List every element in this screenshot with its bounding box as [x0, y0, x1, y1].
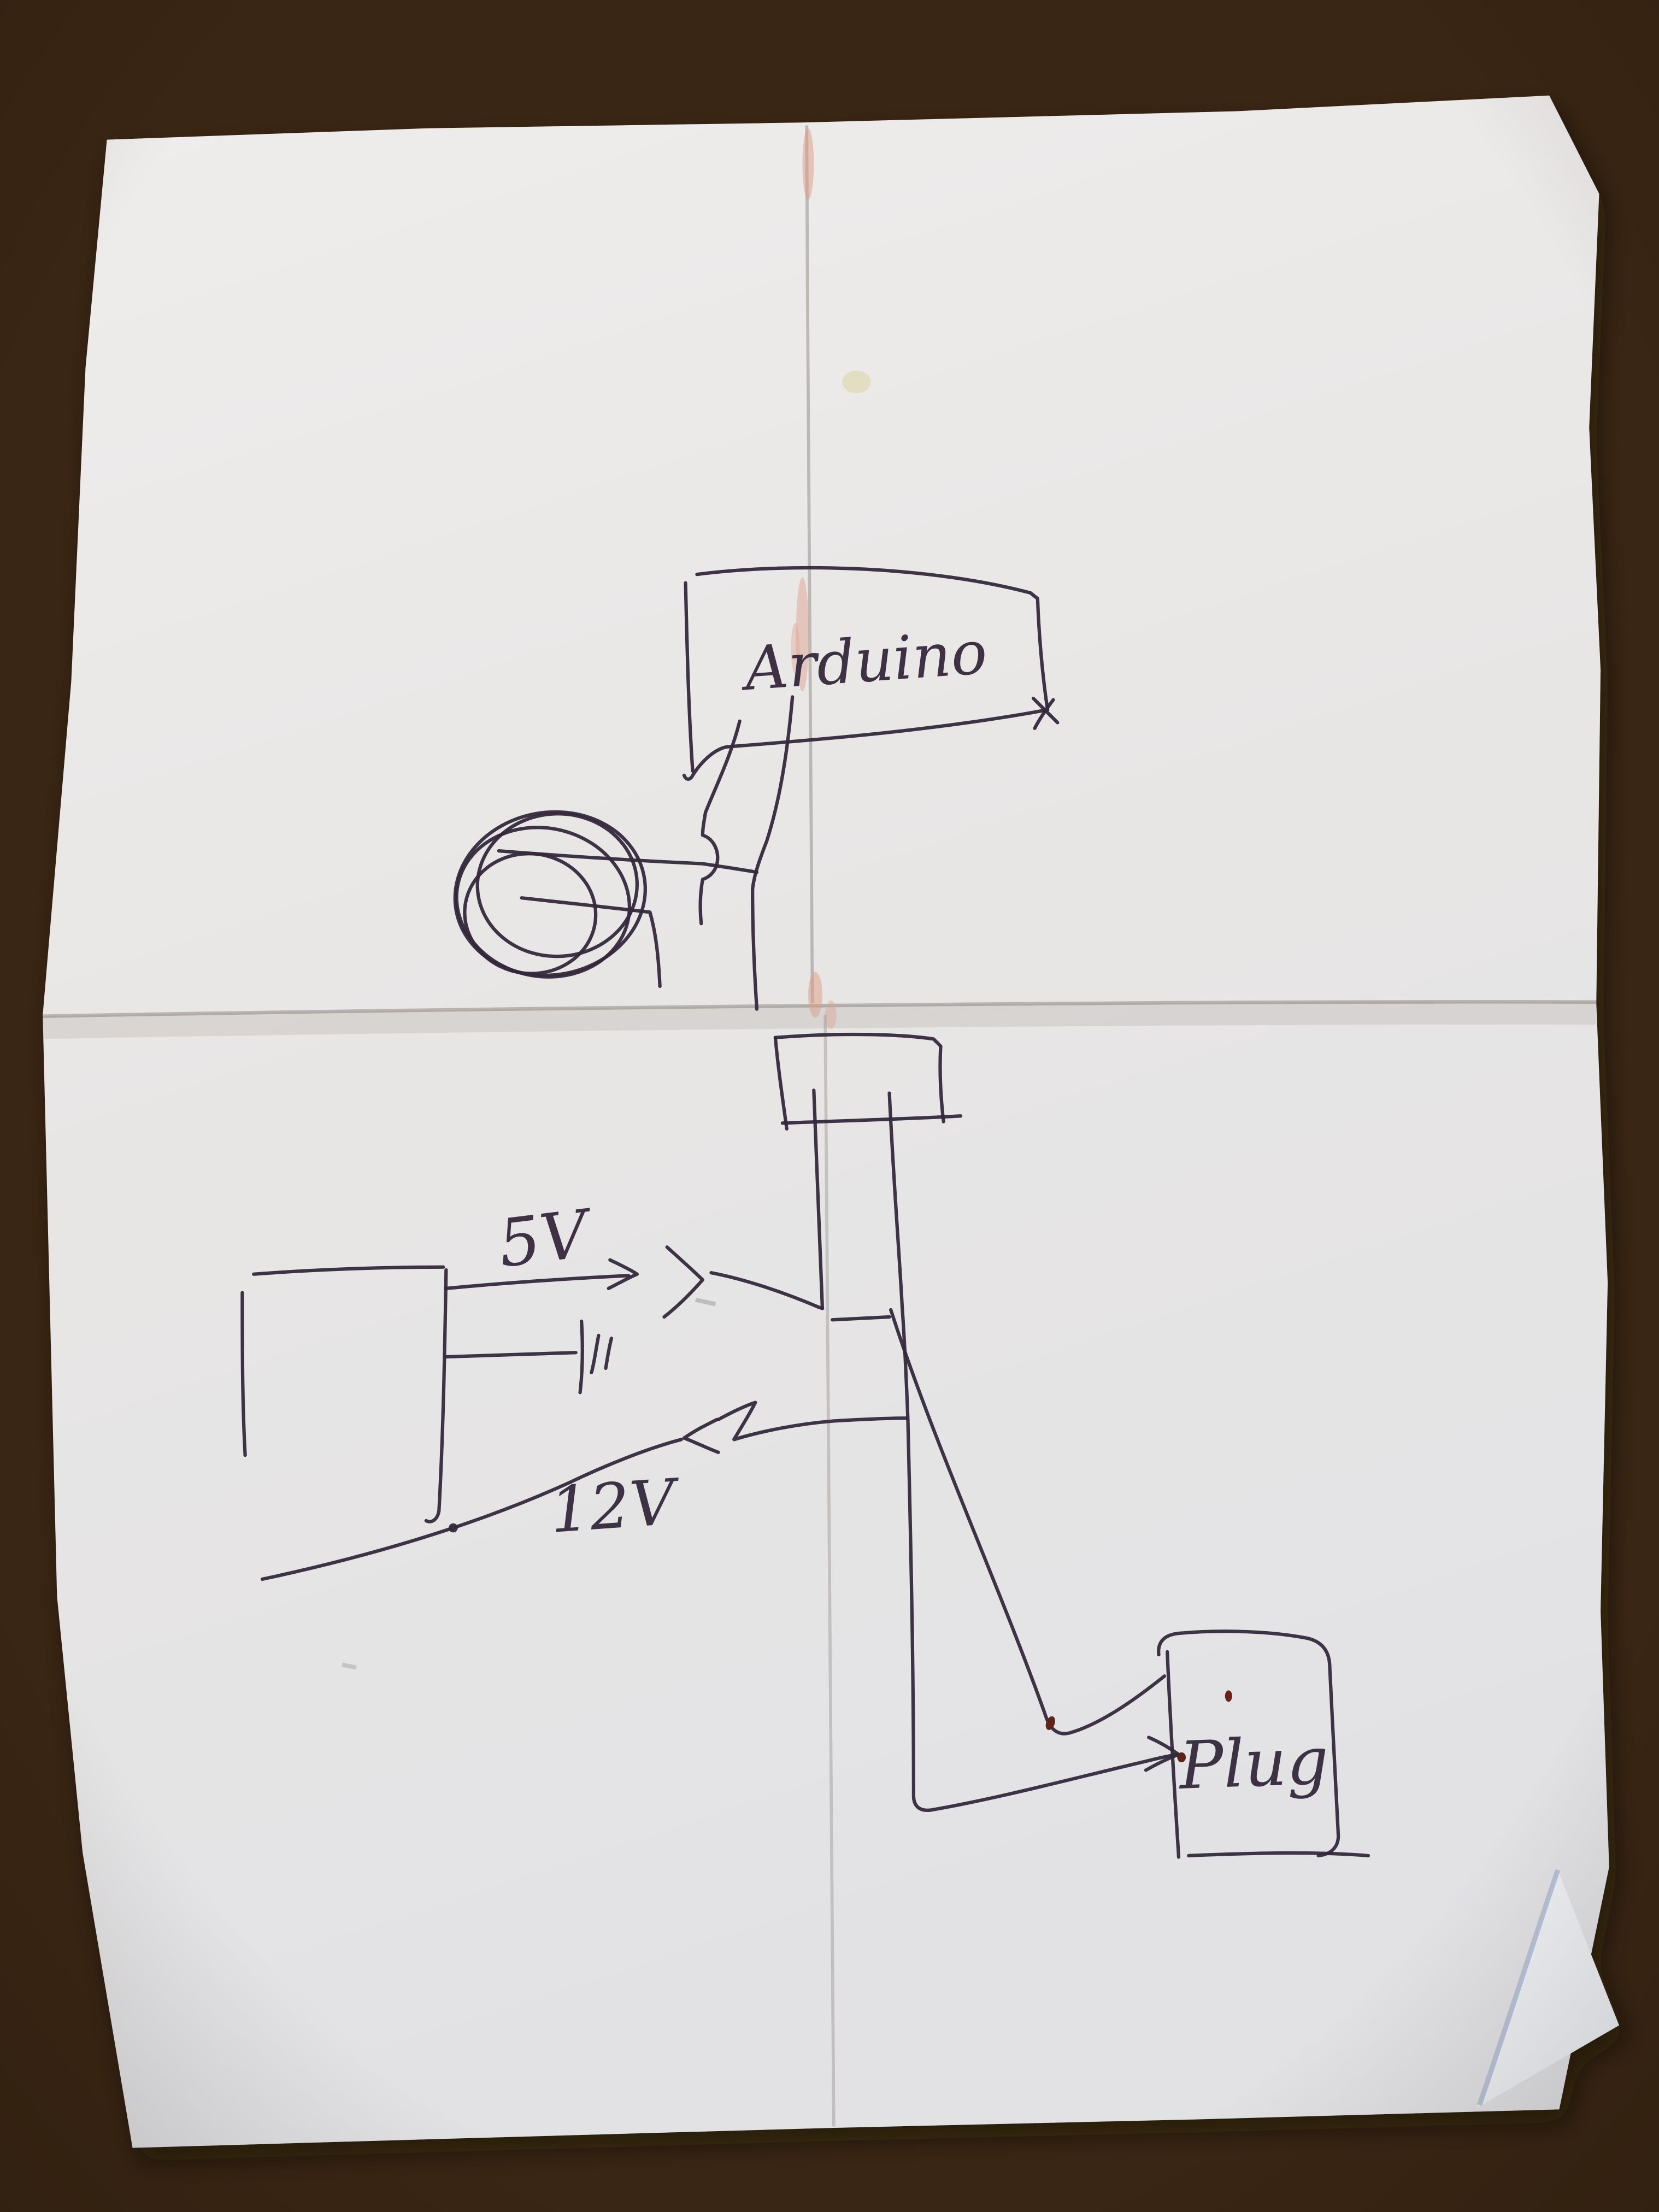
five-volt-label: 5V — [495, 1196, 598, 1283]
crease-pink-smudge — [825, 1001, 837, 1029]
photo-scene: Arduino — [0, 0, 1659, 2212]
sketch-svg: Arduino — [0, 0, 1659, 2212]
crease-pink-smudge — [802, 128, 814, 199]
crease-pink-smudge — [808, 972, 822, 1017]
pencil-smudge — [342, 1664, 356, 1667]
twelve-volt-label: 12V — [548, 1466, 683, 1548]
ink-blob — [1225, 1690, 1232, 1702]
paper-yellow-stain — [842, 370, 870, 393]
plug-label: Plug — [1177, 1723, 1330, 1804]
